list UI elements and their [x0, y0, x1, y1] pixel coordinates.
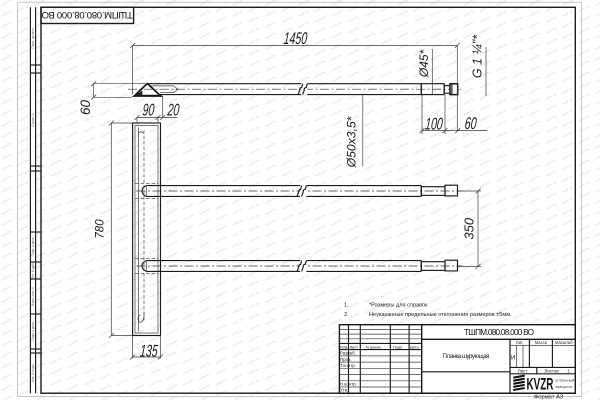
svg-text:90: 90 [142, 101, 155, 120]
svg-text:135: 135 [139, 342, 158, 361]
svg-text:Т.контр.: Т.контр. [340, 363, 356, 368]
svg-text:20: 20 [166, 101, 180, 120]
svg-text:Неуказанные предельные отклоне: Неуказанные предельные отклонения размер… [369, 312, 512, 318]
svg-text:Дата: Дата [410, 344, 419, 349]
svg-text:1450: 1450 [283, 30, 308, 49]
svg-text:Взам. инв. N: Взам. инв. N [31, 286, 35, 305]
svg-text:И: И [511, 355, 515, 362]
svg-text:1.: 1. [344, 303, 349, 309]
svg-text:KVZR: KVZR [527, 375, 554, 393]
svg-text:*Размеры для справок: *Размеры для справок [369, 303, 428, 309]
svg-text:Листов: Листов [544, 368, 559, 373]
svg-text:Изм.: Изм. [340, 344, 348, 349]
svg-text:Лист: Лист [350, 344, 359, 349]
svg-text:Утв.: Утв. [340, 388, 348, 393]
svg-text:КОТЕЛЬНЫЙ: КОТЕЛЬНЫЙ [556, 379, 575, 383]
svg-text:2.: 2. [344, 312, 349, 318]
svg-text:Справ. N: Справ. N [31, 113, 35, 127]
svg-text:Лит.: Лит. [516, 340, 524, 345]
svg-text:Формат А3: Формат А3 [534, 395, 563, 400]
svg-text:ЗАВОД РЭУ: ЗАВОД РЭУ [556, 385, 573, 389]
svg-text:Лист: Лист [518, 368, 528, 373]
svg-text:G 1 ¼"*: G 1 ¼"* [471, 34, 485, 78]
svg-text:Масштаб: Масштаб [555, 340, 573, 345]
svg-text:Инв. N дубл.: Инв. N дубл. [31, 261, 35, 280]
svg-text:780: 780 [95, 219, 107, 239]
svg-text:Пров.: Пров. [340, 357, 352, 362]
svg-text:350: 350 [462, 217, 477, 239]
svg-text:Подп. и дата: Подп. и дата [31, 322, 35, 341]
svg-text:100: 100 [424, 115, 443, 134]
svg-text:N докум.: N докум. [366, 344, 382, 349]
svg-text:Н.контр.: Н.контр. [340, 382, 357, 387]
svg-text:Разраб.: Разраб. [340, 351, 356, 356]
svg-text:Подп.: Подп. [393, 344, 403, 349]
svg-text:60: 60 [78, 100, 93, 116]
svg-text:Ø45*: Ø45* [417, 49, 431, 78]
svg-text:60: 60 [464, 115, 477, 134]
svg-text:Перв. примен.: Перв. примен. [31, 27, 35, 48]
svg-text:ТШПМ.080.08.000 ВО: ТШПМ.080.08.000 ВО [42, 9, 133, 20]
svg-text:Подп. и дата: Подп. и дата [31, 237, 35, 256]
svg-text:Планка шурующая: Планка шурующая [443, 353, 490, 360]
svg-text:ТШПМ.080.08.000 ВО: ТШПМ.080.08.000 ВО [464, 328, 534, 337]
svg-text:Масса: Масса [535, 340, 548, 345]
svg-text:Ø50х3,5*: Ø50х3,5* [345, 115, 359, 168]
svg-text:Инв. N подл.: Инв. N подл. [31, 364, 35, 383]
